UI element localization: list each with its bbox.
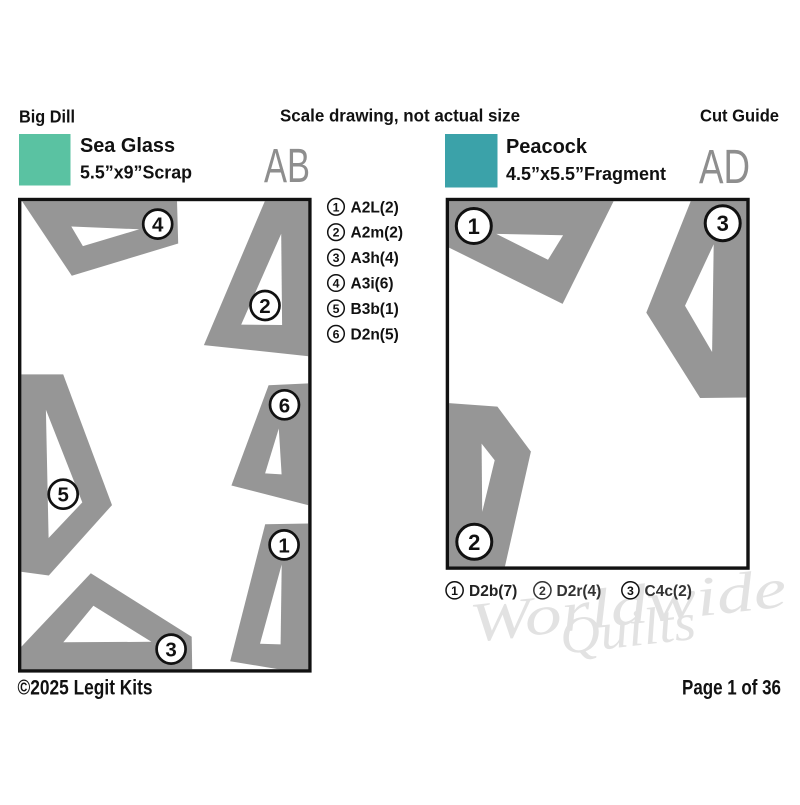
- svg-text:5: 5: [57, 484, 68, 507]
- svg-text:2: 2: [468, 530, 480, 555]
- svg-text:A2m(2): A2m(2): [351, 225, 404, 242]
- svg-text:A2L(2): A2L(2): [351, 199, 399, 216]
- svg-text:1: 1: [333, 200, 340, 214]
- svg-text:Scale drawing, not actual size: Scale drawing, not actual size: [280, 105, 520, 125]
- svg-text:3: 3: [717, 211, 729, 236]
- svg-text:AB: AB: [264, 140, 310, 193]
- svg-text:3: 3: [333, 251, 340, 265]
- svg-text:Sea Glass: Sea Glass: [80, 134, 175, 157]
- svg-text:4.5”x5.5”Fragment: 4.5”x5.5”Fragment: [506, 164, 666, 184]
- svg-text:3: 3: [165, 639, 176, 662]
- svg-text:B3b(1): B3b(1): [351, 301, 399, 318]
- svg-text:D2b(7): D2b(7): [469, 583, 517, 600]
- svg-text:Page 1 of 36: Page 1 of 36: [682, 677, 781, 700]
- svg-text:Cut Guide: Cut Guide: [700, 105, 779, 125]
- svg-text:A3i(6): A3i(6): [351, 276, 394, 293]
- svg-text:Big Dill: Big Dill: [19, 106, 75, 126]
- svg-text:6: 6: [333, 327, 340, 341]
- svg-text:1: 1: [468, 214, 480, 239]
- svg-text:2: 2: [333, 226, 340, 240]
- svg-text:A3h(4): A3h(4): [351, 250, 399, 267]
- svg-text:AD: AD: [699, 141, 750, 194]
- svg-text:D2r(4): D2r(4): [557, 583, 602, 600]
- svg-text:2: 2: [539, 584, 546, 598]
- svg-text:2: 2: [259, 295, 270, 318]
- svg-text:5: 5: [333, 302, 340, 316]
- svg-text:D2n(5): D2n(5): [351, 326, 399, 343]
- svg-text:6: 6: [279, 394, 290, 417]
- svg-text:1: 1: [278, 534, 289, 557]
- svg-text:4: 4: [152, 214, 164, 237]
- svg-text:5.5”x9”Scrap: 5.5”x9”Scrap: [80, 163, 192, 183]
- svg-text:©2025 Legit Kits: ©2025 Legit Kits: [18, 677, 153, 700]
- svg-text:Peacock: Peacock: [506, 135, 588, 158]
- svg-text:C4c(2): C4c(2): [645, 583, 692, 600]
- svg-text:4: 4: [333, 277, 340, 291]
- svg-text:1: 1: [451, 584, 458, 598]
- svg-text:3: 3: [627, 584, 634, 598]
